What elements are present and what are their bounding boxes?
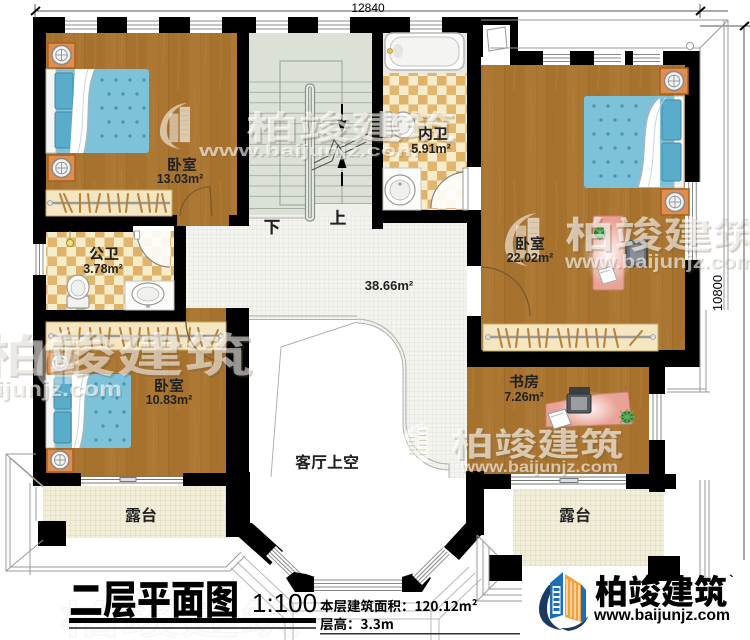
svg-text:10.83m²: 10.83m²	[146, 393, 193, 407]
svg-text:1:100: 1:100	[252, 588, 317, 618]
svg-text:www.baijunjz.com: www.baijunjz.com	[0, 378, 122, 401]
svg-text:7.26m²: 7.26m²	[504, 390, 544, 404]
svg-text:10800: 10800	[710, 275, 725, 311]
svg-text:12840: 12840	[351, 1, 385, 15]
svg-text:3.78m²: 3.78m²	[83, 262, 123, 276]
svg-text:www.baijunjz.com: www.baijunjz.com	[564, 252, 750, 273]
svg-text:22.02m²: 22.02m²	[507, 251, 554, 265]
svg-text:5.91m²: 5.91m²	[411, 142, 451, 156]
svg-text:www.baijunjz.com: www.baijunjz.com	[198, 141, 419, 160]
svg-text:38.66m²: 38.66m²	[365, 278, 414, 293]
svg-text:`: `	[729, 572, 734, 588]
svg-text:www.baijunjz.com: www.baijunjz.com	[593, 607, 730, 624]
svg-text:13.03m²: 13.03m²	[157, 172, 204, 186]
svg-text:www.baijunjz.com: www.baijunjz.com	[460, 459, 618, 476]
